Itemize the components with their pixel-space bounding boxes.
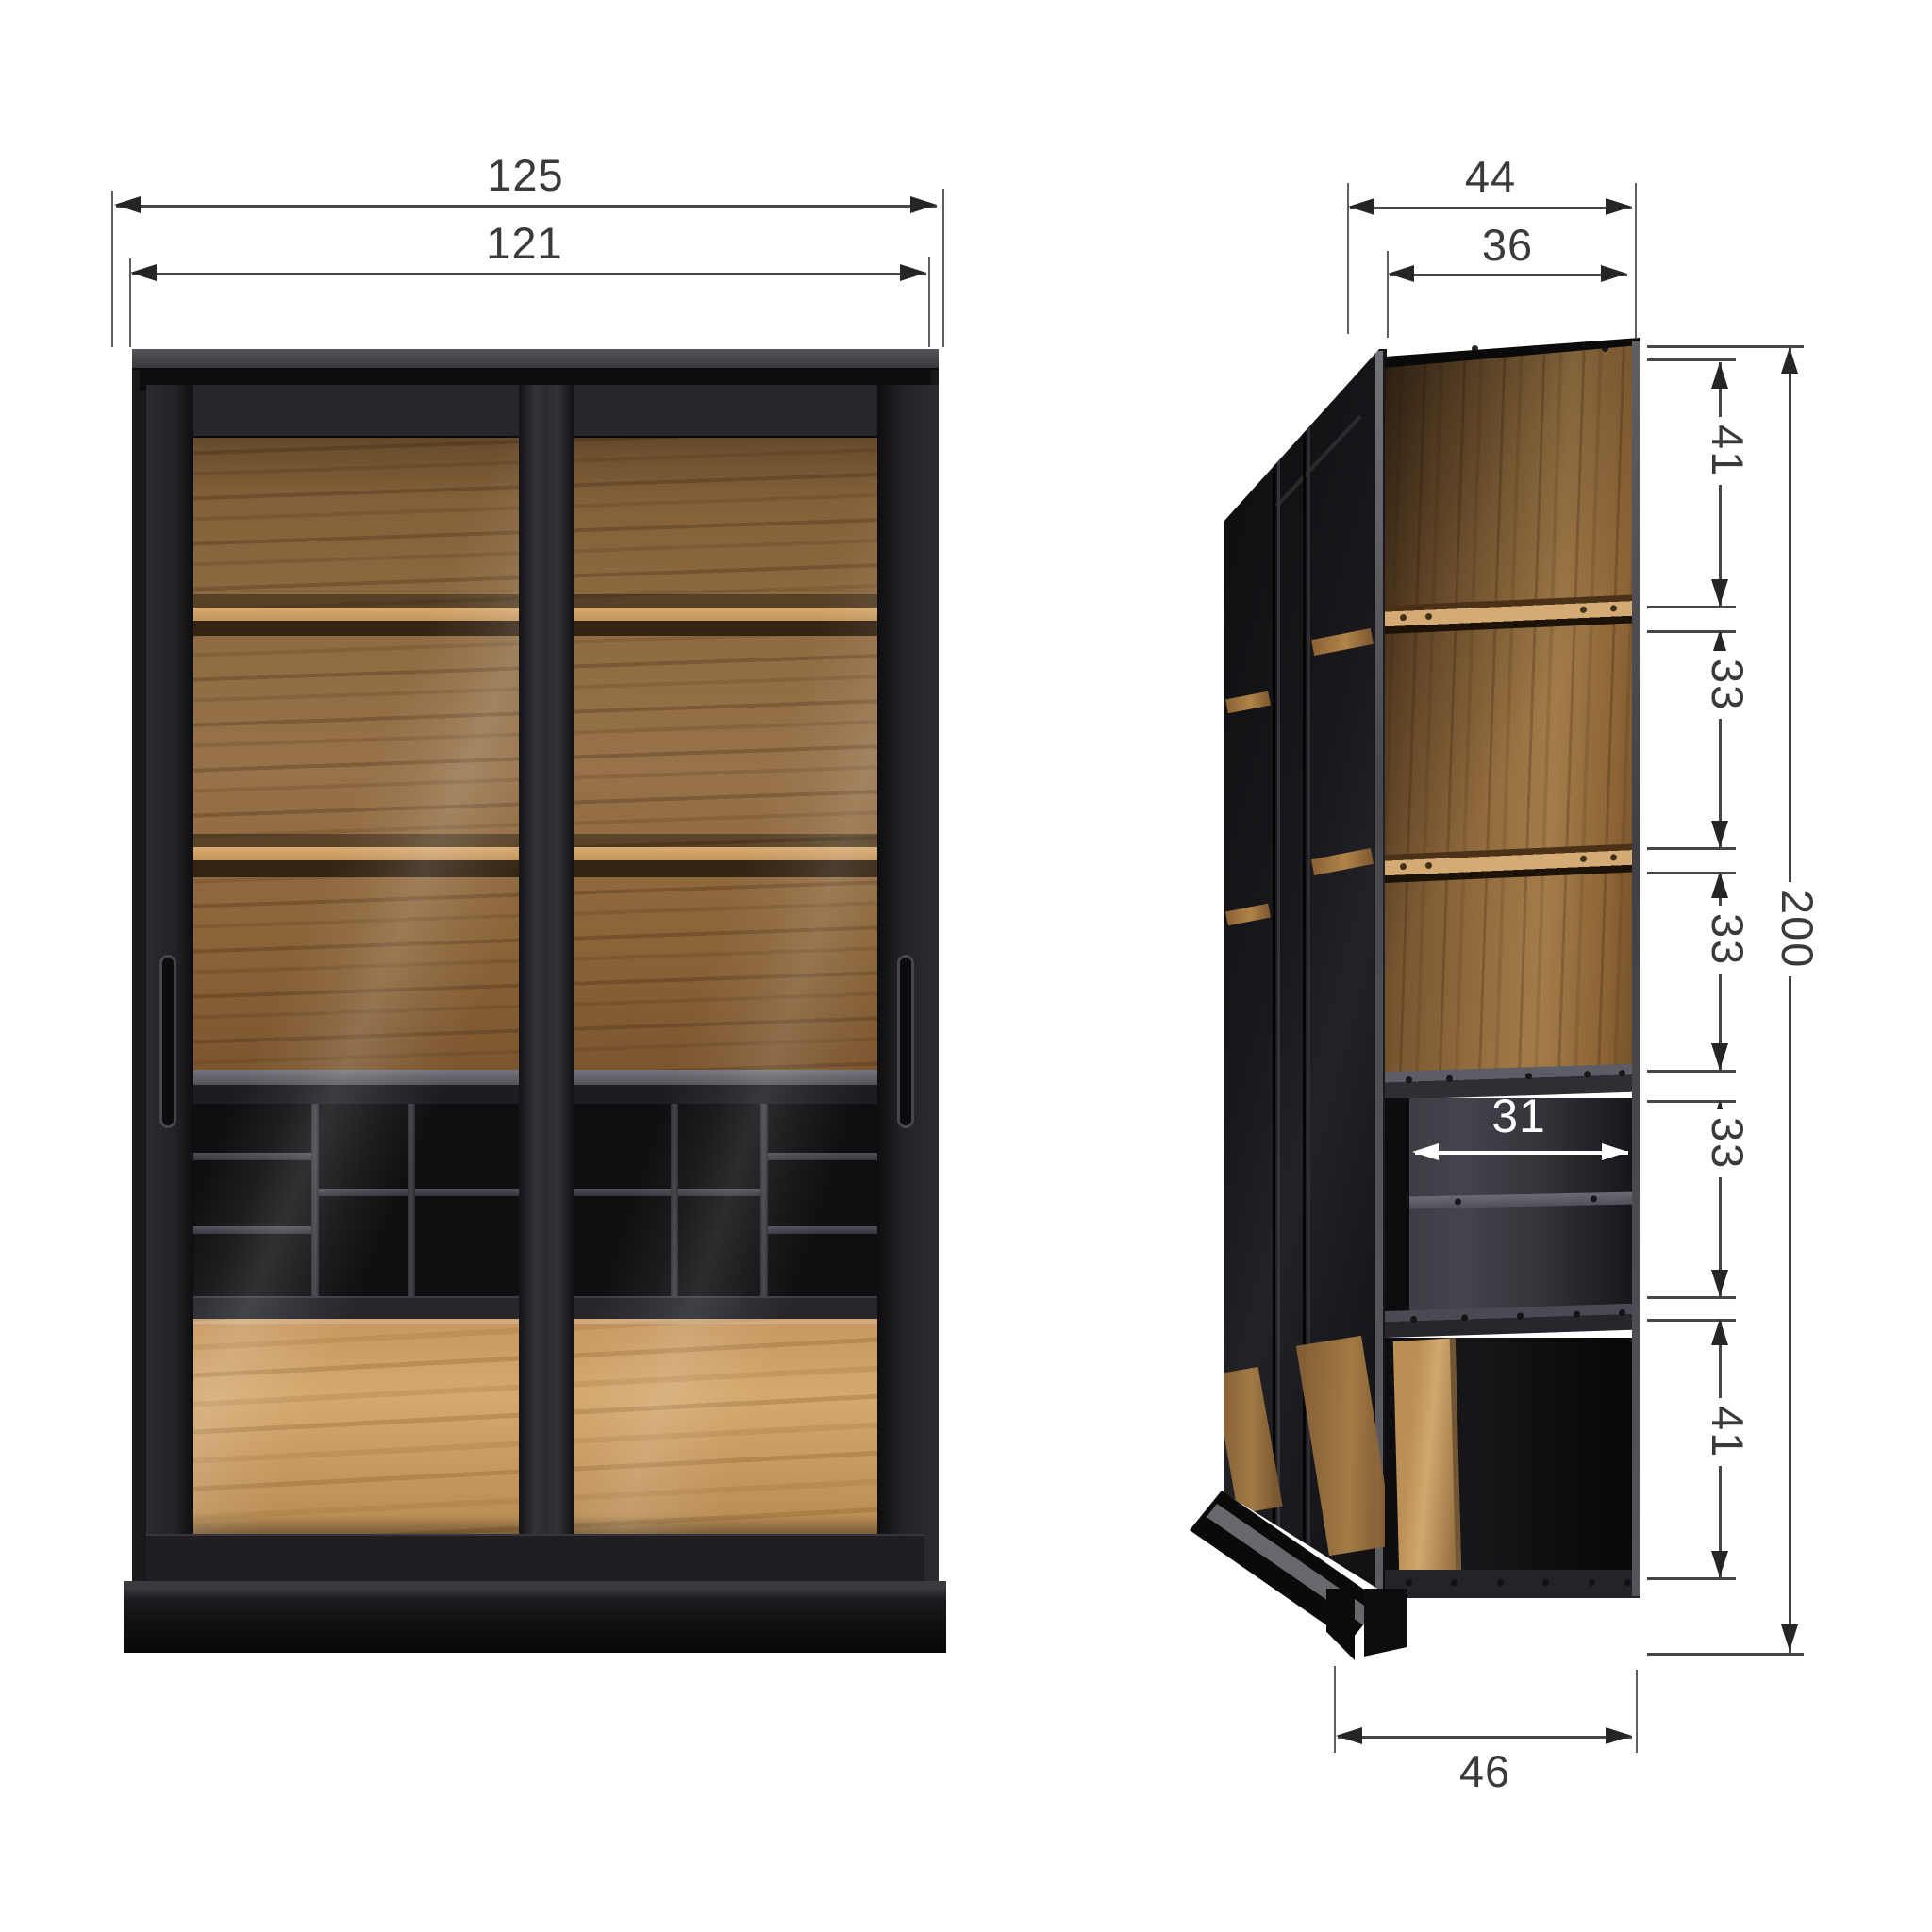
side-back-shadow	[1385, 340, 1640, 1075]
screw-icon	[1542, 1579, 1549, 1586]
screw-icon	[1400, 863, 1407, 870]
dim-depth-inner-line	[1390, 274, 1627, 276]
arrow-left-icon	[1336, 1727, 1362, 1744]
screw-icon	[1602, 345, 1608, 352]
dim-width-total-line	[116, 205, 937, 208]
shelf-through-glass	[1311, 848, 1374, 875]
arrow-down-icon	[1711, 1551, 1728, 1577]
arrow-left-icon	[114, 196, 141, 213]
dim-depth-inner-label: 36	[1413, 223, 1602, 267]
dim-tick	[1647, 358, 1736, 361]
door-edge-glint	[1275, 415, 1362, 508]
shelf-through-glass	[1225, 691, 1271, 714]
screw-icon	[1619, 1070, 1625, 1076]
screw-icon	[1589, 1579, 1595, 1586]
screw-icon	[1591, 1195, 1597, 1202]
dim-height-total-label: 200	[1774, 882, 1822, 976]
screw-icon	[1532, 345, 1539, 352]
arrow-right-icon	[910, 196, 937, 213]
arrow-up-icon	[1781, 347, 1798, 374]
screw-icon	[1580, 607, 1587, 613]
shelf-through-glass	[1311, 628, 1374, 656]
screw-icon	[1446, 1075, 1453, 1082]
dim-segment-4-label: 33	[1704, 1109, 1752, 1177]
screw-icon	[1525, 1073, 1532, 1079]
dim-tick	[1647, 606, 1736, 608]
arrow-right-icon	[1606, 198, 1632, 215]
screw-icon	[1410, 1316, 1417, 1323]
side-bottom-band	[1385, 1570, 1640, 1598]
screw-icon	[1425, 613, 1432, 620]
arrow-down-icon	[1711, 821, 1728, 847]
arrow-left-icon	[1348, 198, 1374, 215]
screw-icon	[1624, 1579, 1631, 1586]
door-center-mullion	[519, 385, 574, 1581]
extension-line	[1635, 183, 1637, 338]
dim-interior-depth-line	[1415, 1151, 1628, 1155]
side-front-post-highlight	[1375, 351, 1383, 1594]
dim-tick	[1647, 1577, 1736, 1580]
screw-icon	[1406, 1579, 1412, 1586]
door-bottom-rail	[146, 1534, 924, 1583]
dim-tick	[1647, 1070, 1736, 1073]
arrow-down-icon	[1711, 579, 1728, 606]
dim-segment-top-label: 41	[1704, 417, 1752, 485]
front-top-cap	[132, 349, 939, 370]
side-door-assembly	[1212, 340, 1387, 1615]
dim-segment-2-label: 33	[1704, 651, 1752, 719]
arrow-right-icon	[1602, 1143, 1628, 1160]
arrow-up-icon	[1711, 1319, 1728, 1345]
arrow-up-icon	[1711, 872, 1728, 898]
extension-line	[1387, 251, 1389, 338]
arrow-down-icon	[1711, 1043, 1728, 1070]
screw-icon	[1400, 614, 1407, 621]
screw-icon	[1451, 1579, 1457, 1586]
arrow-down-icon	[1711, 1270, 1728, 1296]
glass-pane-left	[193, 436, 519, 1534]
screw-icon	[1610, 605, 1617, 611]
dim-tick	[1647, 1296, 1736, 1299]
side-back-edge	[1632, 341, 1640, 1596]
door-handle-left	[159, 955, 176, 1128]
dim-width-inner-label: 121	[430, 221, 619, 265]
arrow-left-icon	[1412, 1143, 1439, 1160]
diagram-canvas: 125 121 44 36 41	[0, 0, 1932, 1932]
extension-line	[111, 191, 113, 347]
arrow-left-icon	[130, 264, 157, 281]
screw-icon	[1472, 345, 1478, 352]
dim-depth-total-line	[1350, 207, 1632, 209]
side-open-section	[1385, 338, 1640, 1604]
dim-segment-bottom-label: 41	[1704, 1398, 1752, 1466]
shelf-through-glass	[1225, 904, 1271, 926]
arrow-right-icon	[1601, 265, 1627, 282]
door-handle-right	[897, 955, 914, 1128]
screw-icon	[1584, 1071, 1591, 1077]
arrow-down-icon	[1781, 1624, 1798, 1651]
screw-icon	[1406, 1076, 1412, 1083]
front-plinth	[124, 1581, 946, 1653]
screw-icon	[1610, 854, 1617, 860]
dim-interior-depth-label: 31	[1434, 1092, 1604, 1140]
drawer-side-panel	[1393, 1338, 1462, 1577]
side-foot-front	[1326, 1589, 1355, 1660]
dim-width-total-label: 125	[431, 153, 620, 197]
screw-icon	[1425, 862, 1432, 869]
screw-icon	[1497, 1579, 1504, 1586]
glass-pane-right	[574, 436, 877, 1534]
extension-line	[942, 189, 944, 347]
door-edge-glint	[1234, 341, 1359, 475]
dim-tick	[1647, 1653, 1804, 1656]
door-frame-line	[1277, 406, 1280, 1585]
arrow-up-icon	[1711, 362, 1728, 389]
door-frame-line	[1273, 406, 1275, 1585]
screw-icon	[1619, 1309, 1625, 1316]
dim-base-depth-label: 46	[1391, 1749, 1579, 1793]
arrow-right-icon	[900, 264, 926, 281]
arrow-left-icon	[1388, 265, 1414, 282]
extension-line	[928, 257, 930, 347]
dim-segment-3-label: 33	[1704, 906, 1752, 974]
dim-depth-total-label: 44	[1396, 155, 1585, 199]
dim-base-depth-line	[1338, 1736, 1632, 1739]
screw-icon	[1461, 1314, 1468, 1321]
dim-width-inner-line	[132, 273, 926, 275]
mid-compartment-side-wall	[1385, 1098, 1409, 1315]
screw-icon	[1580, 856, 1587, 862]
screw-icon	[1517, 1312, 1524, 1319]
dim-height-total-line	[1789, 345, 1791, 1653]
side-foot-back	[1364, 1589, 1407, 1657]
screw-icon	[1574, 1311, 1580, 1318]
arrow-right-icon	[1606, 1727, 1632, 1744]
dim-tick	[1647, 847, 1736, 850]
screw-icon	[1455, 1198, 1461, 1205]
extension-line	[1636, 1670, 1638, 1753]
